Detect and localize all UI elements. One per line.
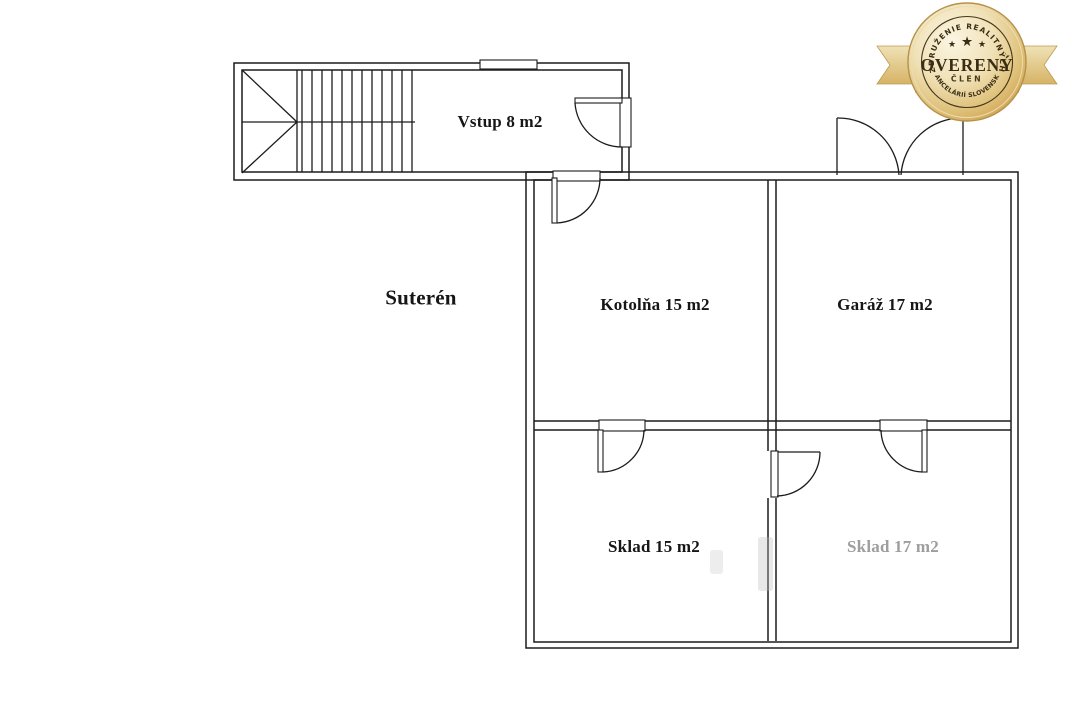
floorplan-page: Suterén Vstup 8 m2 Kotolňa 15 m2 Garáž 1… bbox=[0, 0, 1074, 715]
star-icon: ★ bbox=[961, 34, 973, 50]
storage15-door-frame bbox=[599, 420, 645, 431]
watermark-fragment bbox=[758, 537, 773, 591]
storage15-door bbox=[598, 430, 644, 472]
stair-treads bbox=[297, 70, 412, 172]
storage17-top-door bbox=[881, 430, 927, 472]
star-icon: ★ bbox=[948, 40, 956, 50]
room-label-sklad15: Sklad 15 m2 bbox=[608, 537, 700, 557]
floor-label: Suterén bbox=[385, 286, 456, 311]
room-label-kotolna: Kotolňa 15 m2 bbox=[600, 295, 709, 315]
room-label-garaz: Garáž 17 m2 bbox=[837, 295, 933, 315]
storage17-door-frame bbox=[880, 420, 927, 431]
entrance-window bbox=[480, 60, 537, 69]
room-label-sklad17: Sklad 17 m2 bbox=[847, 537, 939, 557]
boiler-door-frame bbox=[553, 171, 600, 181]
staircase bbox=[242, 70, 415, 173]
watermark-fragment bbox=[710, 550, 723, 574]
stair-landing bbox=[242, 70, 415, 173]
entrance-door bbox=[575, 98, 622, 147]
badge-sub-text: ČLEN bbox=[951, 75, 983, 84]
room-label-vstup: Vstup 8 m2 bbox=[457, 112, 542, 132]
badge-main-text: OVERENÝ bbox=[920, 55, 1013, 75]
storage17-side-door bbox=[771, 451, 820, 497]
star-icon: ★ bbox=[978, 40, 986, 50]
boiler-room-door bbox=[552, 178, 600, 223]
certification-badge: ZDRUŽENIE REALITNÝCH KANCELÁRIÍ SLOVENSK… bbox=[860, 0, 1070, 135]
entrance-door-frame bbox=[620, 98, 631, 147]
